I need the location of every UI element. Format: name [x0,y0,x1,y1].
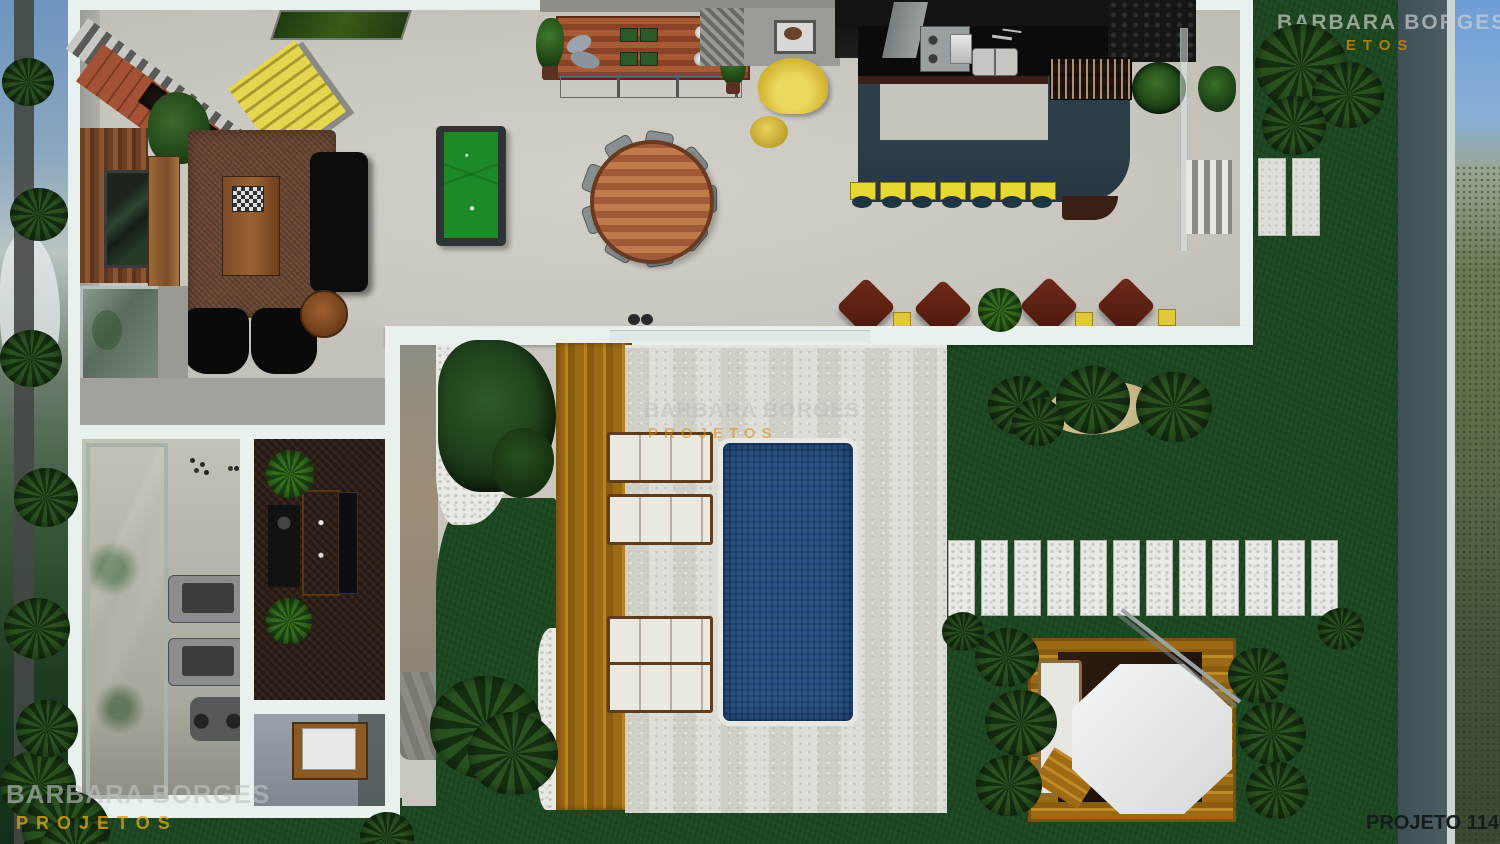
stone-wall-piece [700,8,744,66]
bar-stool-base [912,196,932,208]
stepping-stone [948,540,975,616]
fern-plant [1246,762,1308,819]
striped-tile-area [1186,160,1232,234]
stepping-stone [981,540,1008,616]
stepping-stone [1311,540,1338,616]
kitchen-plant-small [1198,66,1236,112]
stepping-stone [1113,540,1140,616]
glass-door-strip [610,330,870,342]
billiard-felt [444,132,498,238]
fern-plant [468,712,558,795]
sideboard-tray-1 [620,28,638,42]
exercise-bike [190,697,246,741]
stepping-stone [1245,540,1272,616]
floorplan-render: BARBARA BORGES PROJETOS BARBARA BORGES P… [0,0,1500,844]
pool-frame-left [385,330,400,820]
gym-mirror [86,443,168,799]
fern-plant [975,628,1039,687]
stepping-stone [1278,540,1305,616]
potted-plant [266,598,312,644]
plant-pot-left [542,66,558,80]
bar-stool-base [942,196,962,208]
potted-plant [978,288,1022,332]
sun-lounger [607,494,713,545]
garden-tile [1258,158,1286,236]
stepping-stone-row [948,540,1328,618]
stepping-stone [1146,540,1173,616]
kitchen-plant-large [1132,62,1186,114]
wood-cabinet [148,156,180,291]
dining-set [583,133,713,263]
sink-basins [972,48,1018,76]
bathroom-sink [302,728,356,770]
plant-pot-right [726,82,740,94]
small-picture-art [784,27,802,40]
bar-stool-base [1002,196,1022,208]
fern-plant [1318,608,1364,650]
right-wall-edge [1447,0,1455,844]
yellow-pouf [750,116,788,148]
bar-room-counter [302,490,340,596]
garden-tile [1292,158,1320,236]
fern-plant [942,612,984,651]
stepping-stone [1047,540,1074,616]
fern-plant [4,598,70,659]
white-parasol [1072,664,1232,814]
project-code-label: PROJETO 114 [1366,812,1499,835]
black-sofa [310,152,368,292]
wall-painting [270,10,412,40]
treadmill-2-belt [182,646,234,676]
chessboard [232,186,264,212]
sun-lounger [607,662,713,713]
yellow-armchair [758,58,828,114]
fern-plant [10,188,68,241]
right-wall-strip [1398,0,1447,844]
kitchen-appliance-white [950,34,972,64]
bar-stool-base [972,196,992,208]
slippers [628,314,640,325]
fern-plant [0,330,62,387]
fern-plant [1012,398,1064,446]
fern-plant [16,700,78,757]
bar-stool-base [1032,196,1052,208]
pool-glass-wall [400,345,438,680]
speaker-rack [268,505,300,587]
stepping-stone [1080,540,1107,616]
bar-stool-row [850,182,1080,212]
bathroom-divider [254,700,386,714]
building-frame-right [1240,0,1253,345]
building-frame-left [68,0,80,425]
brand-sub-text: PROJETOS [648,425,860,442]
fern-plant [1228,648,1288,703]
stepping-stone [1014,540,1041,616]
yellow-side-table [1158,309,1176,326]
dumbbells [190,458,195,463]
brand-text: BARBARA BORGES [644,399,860,423]
sideboard-tray-4 [640,52,658,66]
sideboard-cabinet [560,76,742,98]
brand-sub-text: PROJETOS [16,813,270,834]
fern-plant [1056,366,1130,434]
fern-plant [1136,372,1212,442]
bar-room-tv [338,492,358,594]
fern-plant [1262,96,1326,155]
fern-plant [1238,702,1306,765]
round-dining-table [590,140,714,264]
fern-plant [14,468,78,527]
wall-low-strip [158,286,188,380]
fern-plant [2,58,54,106]
shrub-small [492,428,554,498]
stepping-stone [1212,540,1239,616]
sun-lounger [607,616,713,667]
right-photo-texture [1455,165,1500,844]
black-armchair-1 [183,308,249,374]
potted-plant [266,450,314,498]
bar-inner-floor [880,84,1048,140]
fern-plant [985,690,1057,756]
watermark-center: BARBARA BORGES PROJETOS [644,399,860,442]
fern-plant [976,755,1042,816]
sideboard-tray-3 [620,52,638,66]
treadmill-1-belt [182,583,234,613]
wood-deck [556,343,632,810]
bar-stool-base [882,196,902,208]
bar-stool-base [852,196,872,208]
brand-text: BARBARA BORGES [6,779,270,810]
watermark-bottom-left: BARBARA BORGES PROJETOS [6,779,270,834]
wine-rack [1050,58,1132,100]
glass-reflection-plant [92,310,122,350]
sideboard-tray-2 [640,28,658,42]
swimming-pool [718,438,858,726]
tv-screen [104,170,152,268]
stepping-stone [1179,540,1206,616]
round-side-table [300,290,348,338]
concrete-strip [80,378,385,425]
gym-divider [240,439,254,795]
